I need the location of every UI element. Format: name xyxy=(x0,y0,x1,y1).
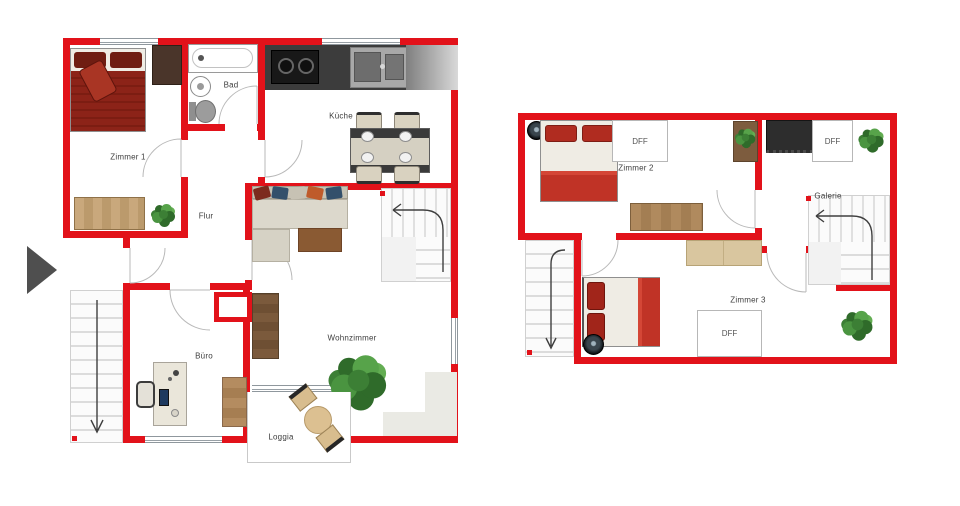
pillow xyxy=(582,125,614,142)
tv-board xyxy=(766,120,813,153)
skylight-label: DFF xyxy=(722,329,738,338)
room-label-zimmer2: Zimmer 2 xyxy=(618,164,653,173)
stairs-up-arrow xyxy=(808,200,888,284)
wall xyxy=(836,284,897,291)
wall xyxy=(574,357,897,364)
wall xyxy=(616,233,762,240)
upper-floor-plan: DFF DFF DFF xyxy=(0,0,960,506)
room-label-galerie: Galerie xyxy=(814,192,841,201)
wall xyxy=(574,240,581,364)
skylight-box: DFF xyxy=(612,120,668,162)
plant-pot xyxy=(733,121,758,162)
wall xyxy=(890,113,897,364)
skylight-label: DFF xyxy=(825,137,841,146)
plant xyxy=(867,135,876,144)
wall xyxy=(518,113,897,120)
blanket xyxy=(638,278,660,346)
plant xyxy=(742,134,750,142)
pillow xyxy=(587,282,605,310)
sideboard xyxy=(630,203,703,231)
plant xyxy=(852,319,864,331)
stairs-down-arrow xyxy=(525,242,574,355)
floorplan-canvas: Zimmer 1 Bad Küche Flur Wohnzimmer Büro … xyxy=(0,0,960,506)
wall xyxy=(518,233,582,240)
dresser-divider xyxy=(723,241,724,265)
wall-marker xyxy=(527,350,532,355)
door-zimmer2 xyxy=(717,190,755,228)
wall xyxy=(518,113,525,240)
pillow xyxy=(545,125,577,142)
door-zimmer3-top xyxy=(582,240,618,276)
speaker xyxy=(583,334,604,355)
skylight-box: DFF xyxy=(697,310,762,357)
skylight-label: DFF xyxy=(632,137,648,146)
dresser xyxy=(686,240,762,266)
skylight-box: DFF xyxy=(812,120,853,162)
wall-marker xyxy=(806,196,811,201)
double-bed xyxy=(540,120,618,202)
blanket xyxy=(541,171,617,201)
door-zimmer3 xyxy=(767,253,806,292)
room-label-zimmer3: Zimmer 3 xyxy=(730,296,765,305)
